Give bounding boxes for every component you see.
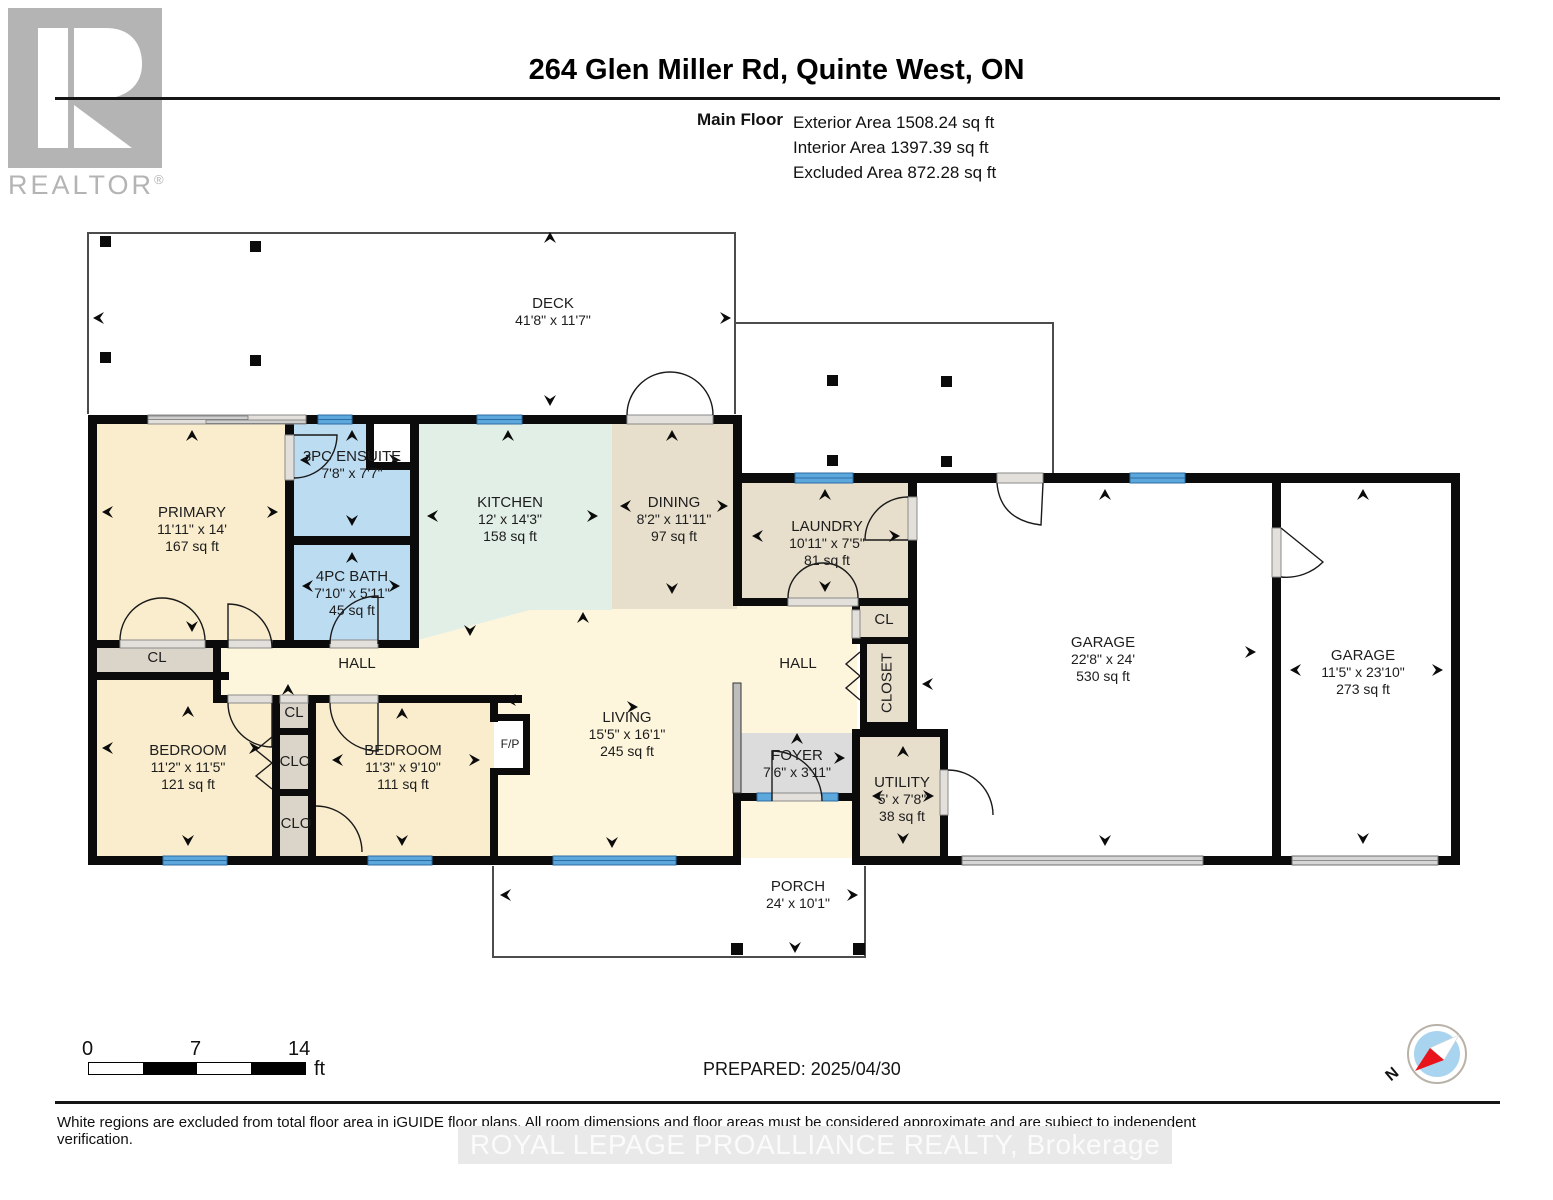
room-label-clo-lower: CLO (281, 815, 312, 832)
room-label-dining: DINING8'2" x 11'11"97 sq ft (637, 494, 712, 545)
room-label-hall-left: HALL (338, 655, 376, 672)
room-label-deck: DECK41'8" x 11'7" (515, 295, 591, 329)
room-label-primary: PRIMARY11'11" x 14'167 sq ft (157, 504, 227, 555)
room-label-foyer: FOYER7'6" x 3'11" (763, 747, 831, 781)
room-label-cl-mid: CL (284, 704, 303, 721)
room-label-hall-right: HALL (779, 655, 817, 672)
room-label-utility: UTILITY5' x 7'8"38 sq ft (874, 774, 930, 825)
garage-doors (962, 856, 1438, 865)
room-label-porch: PORCH24' x 10'1" (766, 878, 830, 912)
realtor-logo-text: REALTOR® (8, 170, 167, 201)
room-label-fireplace: F/P (501, 738, 520, 751)
scale-segment (89, 1063, 143, 1074)
realtor-r-glyph (8, 8, 162, 168)
room-label-garage2: GARAGE11'5" x 23'10"273 sq ft (1321, 647, 1405, 698)
compass-icon (1404, 1022, 1470, 1088)
sliding-door (148, 415, 306, 424)
prepared-date: PREPARED: 2025/04/30 (703, 1059, 901, 1080)
room-label-bedroom2: BEDROOM11'3" x 9'10"111 sq ft (364, 742, 442, 793)
logo-brand-word: REALTOR (8, 170, 154, 200)
scale-label-mid: 7 (190, 1038, 201, 1061)
room-label-garage1: GARAGE22'8" x 24'530 sq ft (1071, 634, 1135, 685)
half-wall (733, 683, 741, 793)
floor-plan (0, 0, 1553, 1200)
scale-bar (88, 1062, 306, 1075)
room-label-bedroom1: BEDROOM11'2" x 11'5"121 sq ft (149, 742, 227, 793)
realtor-logo-icon (8, 8, 162, 168)
room-label-laundry: LAUNDRY10'11" x 7'5"81 sq ft (789, 518, 865, 569)
room-label-cl-primary: CL (147, 649, 166, 666)
header-divider (55, 97, 1500, 100)
scale-label-end: 14 (288, 1038, 310, 1061)
room-label-ensuite: 3PC ENSUITE7'8" x 7'7" (303, 448, 401, 482)
room-label-kitchen: KITCHEN12' x 14'3"158 sq ft (477, 494, 543, 545)
scale-segment (143, 1063, 197, 1074)
room-label-closet: CLOSET (879, 653, 896, 713)
footer-divider (55, 1101, 1500, 1104)
scale-label-start: 0 (82, 1038, 93, 1061)
logo-registered-mark: ® (154, 172, 167, 187)
room-label-bath: 4PC BATH7'10" x 5'11"45 sq ft (314, 568, 390, 619)
room-label-living: LIVING15'5" x 16'1"245 sq ft (589, 709, 666, 760)
scale-unit: ft (314, 1058, 325, 1081)
floorplan-page: REALTOR® 264 Glen Miller Rd, Quinte West… (0, 0, 1553, 1200)
scale-segment (197, 1063, 251, 1074)
room-label-clo-upper: CLO (280, 753, 311, 770)
scale-segment (251, 1063, 305, 1074)
room-label-cl-right: CL (874, 611, 893, 628)
brokerage-watermark: ROYAL LEPAGE PROALLIANCE REALTY, Brokera… (458, 1126, 1172, 1164)
